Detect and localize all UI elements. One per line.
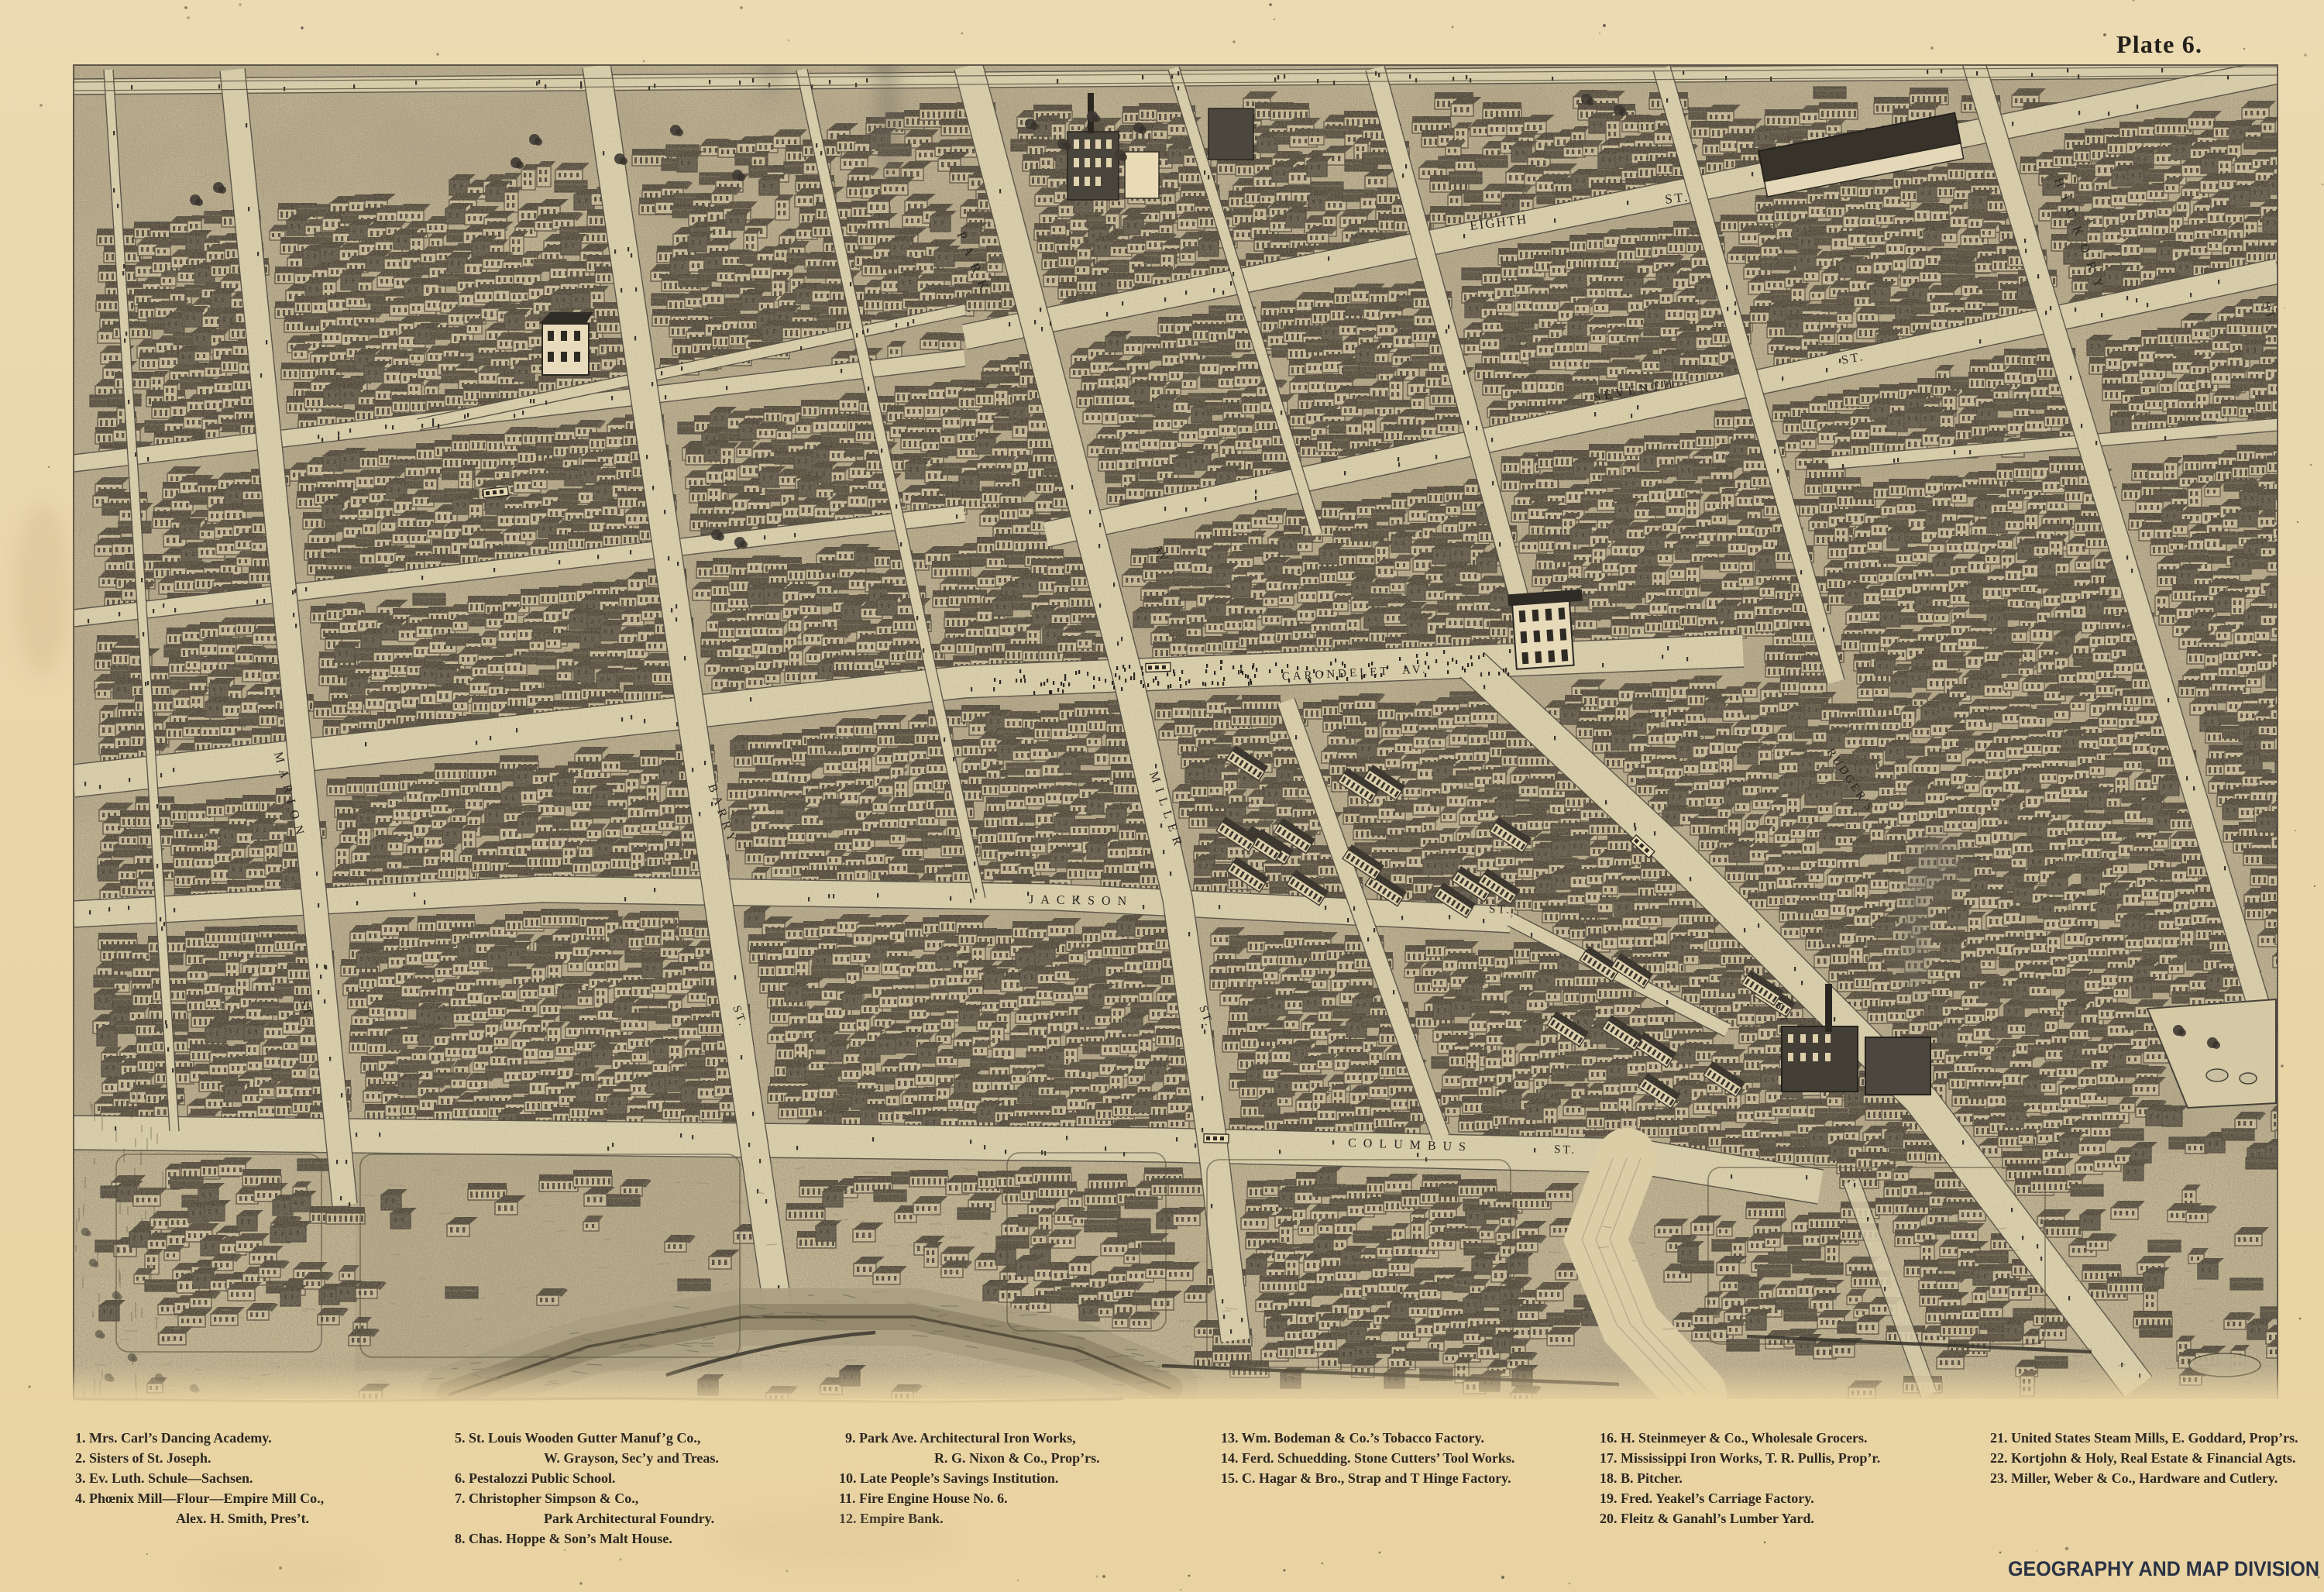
svg-text:JACKSON: JACKSON	[1029, 893, 1133, 908]
svg-text:15. C. Hagar & Bro., Strap an: 15. C. Hagar & Bro., Strap and T Hinge F…	[1221, 1470, 1511, 1486]
svg-text:8. Chas. Hoppe & Son’s Malt H: 8. Chas. Hoppe & Son’s Malt House.	[455, 1531, 672, 1546]
svg-text:4. Phœnix Mill—Flour—Empire M: 4. Phœnix Mill—Flour—Empire Mill Co.,	[75, 1491, 324, 1506]
svg-text:7. Christopher Simpson & Co.,: 7. Christopher Simpson & Co.,	[455, 1491, 638, 1506]
svg-text:W. Grayson, Sec’y and Treas.: W. Grayson, Sec’y and Treas.	[544, 1450, 719, 1466]
svg-text:Park Architectural Foundry.: Park Architectural Foundry.	[544, 1511, 714, 1526]
svg-text:13. Wm. Bodeman & Co.’s Tobac: 13. Wm. Bodeman & Co.’s Tobacco Factory.	[1221, 1430, 1484, 1446]
svg-text:5. St. Louis Wooden Gutter Ma: 5. St. Louis Wooden Gutter Manuf’g Co.,	[455, 1430, 700, 1446]
svg-text:ST.: ST.	[1489, 903, 1512, 916]
svg-text:6. Pestalozzi Public School.: 6. Pestalozzi Public School.	[455, 1470, 615, 1486]
svg-text:20. Fleitz & Ganahl’s Lumber: 20. Fleitz & Ganahl’s Lumber Yard.	[1600, 1511, 1814, 1526]
svg-text:21. United States Steam Mills: 21. United States Steam Mills, E. Goddar…	[1990, 1430, 2298, 1446]
svg-text:Alex. H. Smith, Pres’t.: Alex. H. Smith, Pres’t.	[176, 1511, 309, 1526]
svg-text:10. Late People’s Savings Ins: 10. Late People’s Savings Institution.	[839, 1470, 1058, 1486]
svg-text:9. Park Ave. Architectural Ir: 9. Park Ave. Architectural Iron Works,	[845, 1430, 1076, 1446]
svg-text:18. B. Pitcher.: 18. B. Pitcher.	[1600, 1470, 1683, 1486]
svg-text:22. Kortjohn & Holy, Real Est: 22. Kortjohn & Holy, Real Estate & Finan…	[1990, 1450, 2296, 1466]
svg-text:19. Fred. Yeakel’s Carriage F: 19. Fred. Yeakel’s Carriage Factory.	[1600, 1491, 1814, 1506]
svg-text:ST.: ST.	[1554, 1143, 1577, 1157]
svg-text:ST.: ST.	[1664, 189, 1690, 207]
svg-text:17. Mississippi Iron Works, T: 17. Mississippi Iron Works, T. R. Pullis…	[1600, 1450, 1880, 1466]
svg-text:2. Sisters of St. Joseph.: 2. Sisters of St. Joseph.	[75, 1450, 211, 1466]
svg-text:R. G. Nixon & Co., Prop’rs.: R. G. Nixon & Co., Prop’rs.	[934, 1450, 1100, 1466]
svg-text:3. Ev. Luth. Schule—Sachsen.: 3. Ev. Luth. Schule—Sachsen.	[75, 1470, 253, 1486]
svg-text:Plate 6.: Plate 6.	[2116, 30, 2202, 58]
svg-text:1. Mrs. Carl’s Dancing Academ: 1. Mrs. Carl’s Dancing Academy.	[75, 1430, 272, 1446]
svg-text:23. Miller, Weber & Co., Hard: 23. Miller, Weber & Co., Hardware and Cu…	[1990, 1470, 2278, 1486]
svg-text:11. Fire Engine House No. 6.: 11. Fire Engine House No. 6.	[839, 1491, 1008, 1506]
svg-text:GEOGRAPHY AND MAP DIVISION: GEOGRAPHY AND MAP DIVISION	[2008, 1557, 2319, 1580]
svg-text:16. H. Steinmeyer & Co., Whol: 16. H. Steinmeyer & Co., Wholesale Groce…	[1600, 1430, 1867, 1446]
svg-text:14. Ferd. Schuedding. Stone C: 14. Ferd. Schuedding. Stone Cutters’ Too…	[1221, 1450, 1514, 1466]
